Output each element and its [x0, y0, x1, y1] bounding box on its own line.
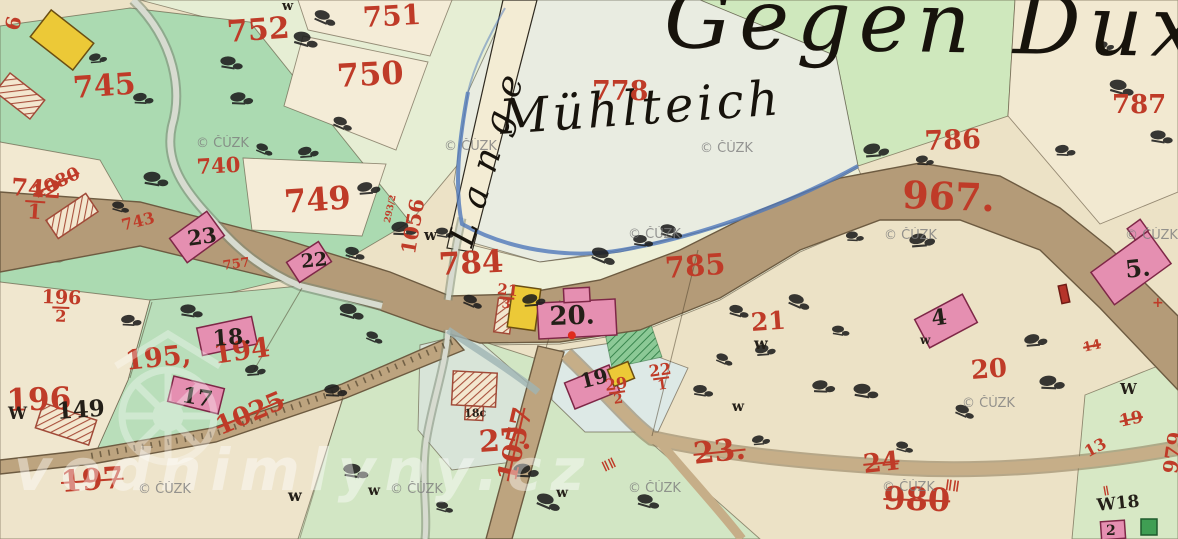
map-artwork [0, 0, 1178, 539]
building-yellow-21-3 [507, 285, 541, 330]
parcel-749-shape [243, 158, 386, 236]
map-canvas[interactable]: Gegen DuxMühlteichLange77875275175074574… [0, 0, 1178, 539]
building-2 [1100, 520, 1125, 539]
building-green-square [1141, 519, 1157, 535]
